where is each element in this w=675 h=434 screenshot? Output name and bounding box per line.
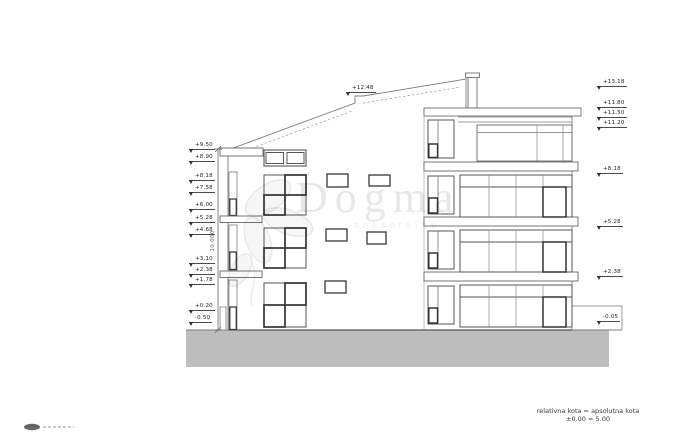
level-arrow-icon <box>597 173 601 177</box>
legend-line1: relativna kota = apsolutna kota <box>508 407 668 415</box>
level-arrow-icon <box>189 209 193 213</box>
right-elevation-marker: -0.05 <box>597 313 620 322</box>
elevation-value: +8.18 <box>603 166 621 172</box>
elevation-value: +2.38 <box>195 267 213 273</box>
level-arrow-icon <box>189 234 193 238</box>
left-facade <box>220 148 306 330</box>
level-arrow-icon <box>597 226 601 230</box>
elevation-value: +6.00 <box>195 202 213 208</box>
elevation-value: +12.48 <box>352 85 374 91</box>
elevation-value: +7.58 <box>195 185 213 191</box>
level-arrow-icon <box>597 127 601 131</box>
building-elevation-svg <box>0 0 675 434</box>
elevation-drawing-page: Dogma nekretnine +9.50 +8.90 +8.18 +7.58… <box>0 0 675 434</box>
elevation-value: +11.20 <box>603 120 625 126</box>
left-elevation-marker: +6.00 <box>189 201 215 210</box>
elevation-value: +13.18 <box>603 79 625 85</box>
overall-height-dimension-text: 10.000 <box>210 221 216 261</box>
right-elevation-marker: +11.20 <box>597 119 627 128</box>
chimney <box>466 73 480 108</box>
elevation-value: -0.50 <box>195 315 210 321</box>
level-arrow-icon <box>189 192 193 196</box>
elevation-value: +11.80 <box>603 100 625 106</box>
left-elevation-marker: +7.58 <box>189 184 215 193</box>
elevation-value: -0.05 <box>603 314 618 320</box>
elevation-value: +8.90 <box>195 154 213 160</box>
elevation-value: +8.18 <box>195 173 213 179</box>
left-elevation-marker: +8.18 <box>189 172 215 181</box>
elevation-value: +2.38 <box>603 269 621 275</box>
legend: relativna kota = apsolutna kota ±0.00 = … <box>508 407 668 423</box>
left-elevation-marker: +0.20 <box>189 302 215 311</box>
elevation-value: +1.78 <box>195 277 213 283</box>
elevation-value: +11.50 <box>603 110 625 116</box>
left-elevation-marker: +2.38 <box>189 266 215 275</box>
level-arrow-icon <box>189 284 193 288</box>
left-elevation-marker: +1.78 <box>189 276 215 285</box>
level-arrow-icon <box>597 276 601 280</box>
left-elevation-marker: +8.90 <box>189 153 215 162</box>
roof-step-elevation-marker: +12.48 <box>346 84 376 93</box>
elevation-value: +9.50 <box>195 142 213 148</box>
left-elevation-marker: +9.50 <box>189 141 215 150</box>
roof-slab <box>424 108 581 116</box>
right-elevation-marker: +8.18 <box>597 165 623 174</box>
corner-logo-mark <box>24 424 74 430</box>
left-elevation-marker: -0.50 <box>189 314 212 323</box>
level-arrow-icon <box>189 161 193 165</box>
legend-line2: ±0.00 = 5.00 <box>508 415 668 423</box>
right-facade <box>424 117 578 327</box>
level-arrow-icon <box>346 92 350 96</box>
elevation-value: +5.28 <box>603 219 621 225</box>
level-arrow-icon <box>597 86 601 90</box>
middle-small-windows <box>325 174 390 293</box>
right-elevation-marker: +11.50 <box>597 109 627 118</box>
level-arrow-icon <box>189 322 193 326</box>
right-elevation-marker: +2.38 <box>597 268 623 277</box>
level-arrow-icon <box>597 321 601 325</box>
elevation-value: +0.20 <box>195 303 213 309</box>
right-elevation-marker: +13.18 <box>597 78 627 87</box>
right-elevation-marker: +11.80 <box>597 99 627 108</box>
right-elevation-marker: +5.28 <box>597 218 623 227</box>
